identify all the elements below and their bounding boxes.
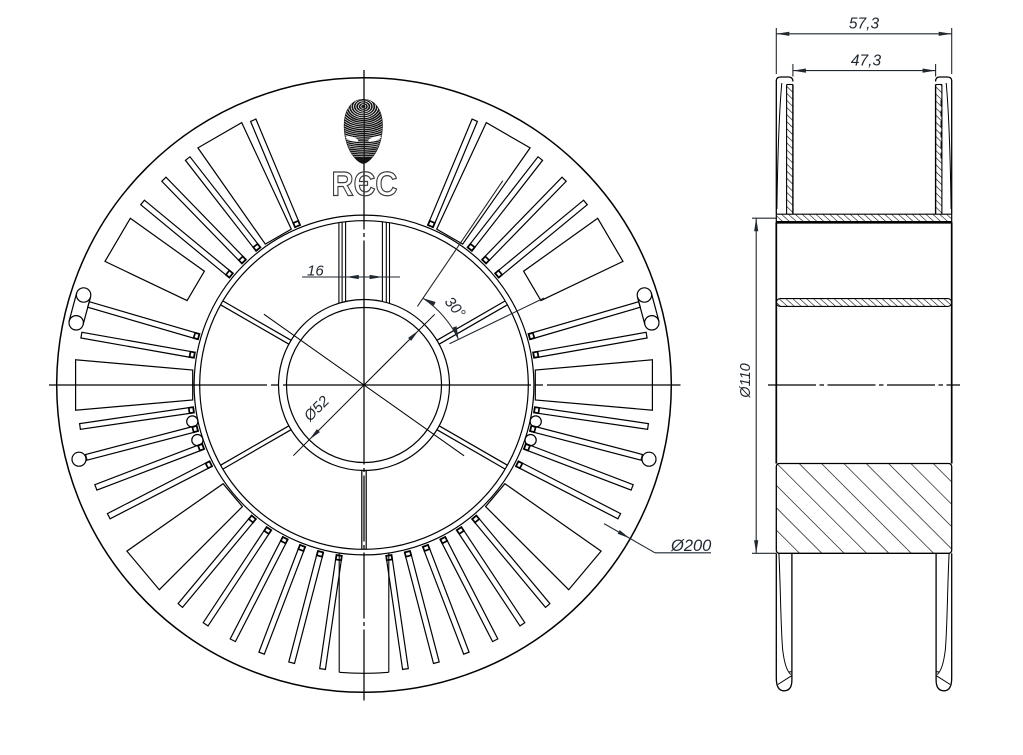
svg-text:RЄC: RЄC	[332, 166, 398, 204]
svg-text:Ø200: Ø200	[670, 537, 712, 555]
svg-text:Ø110: Ø110	[738, 363, 754, 398]
svg-text:16: 16	[307, 263, 324, 280]
svg-text:57,3: 57,3	[849, 16, 880, 33]
svg-text:47,3: 47,3	[851, 53, 882, 70]
